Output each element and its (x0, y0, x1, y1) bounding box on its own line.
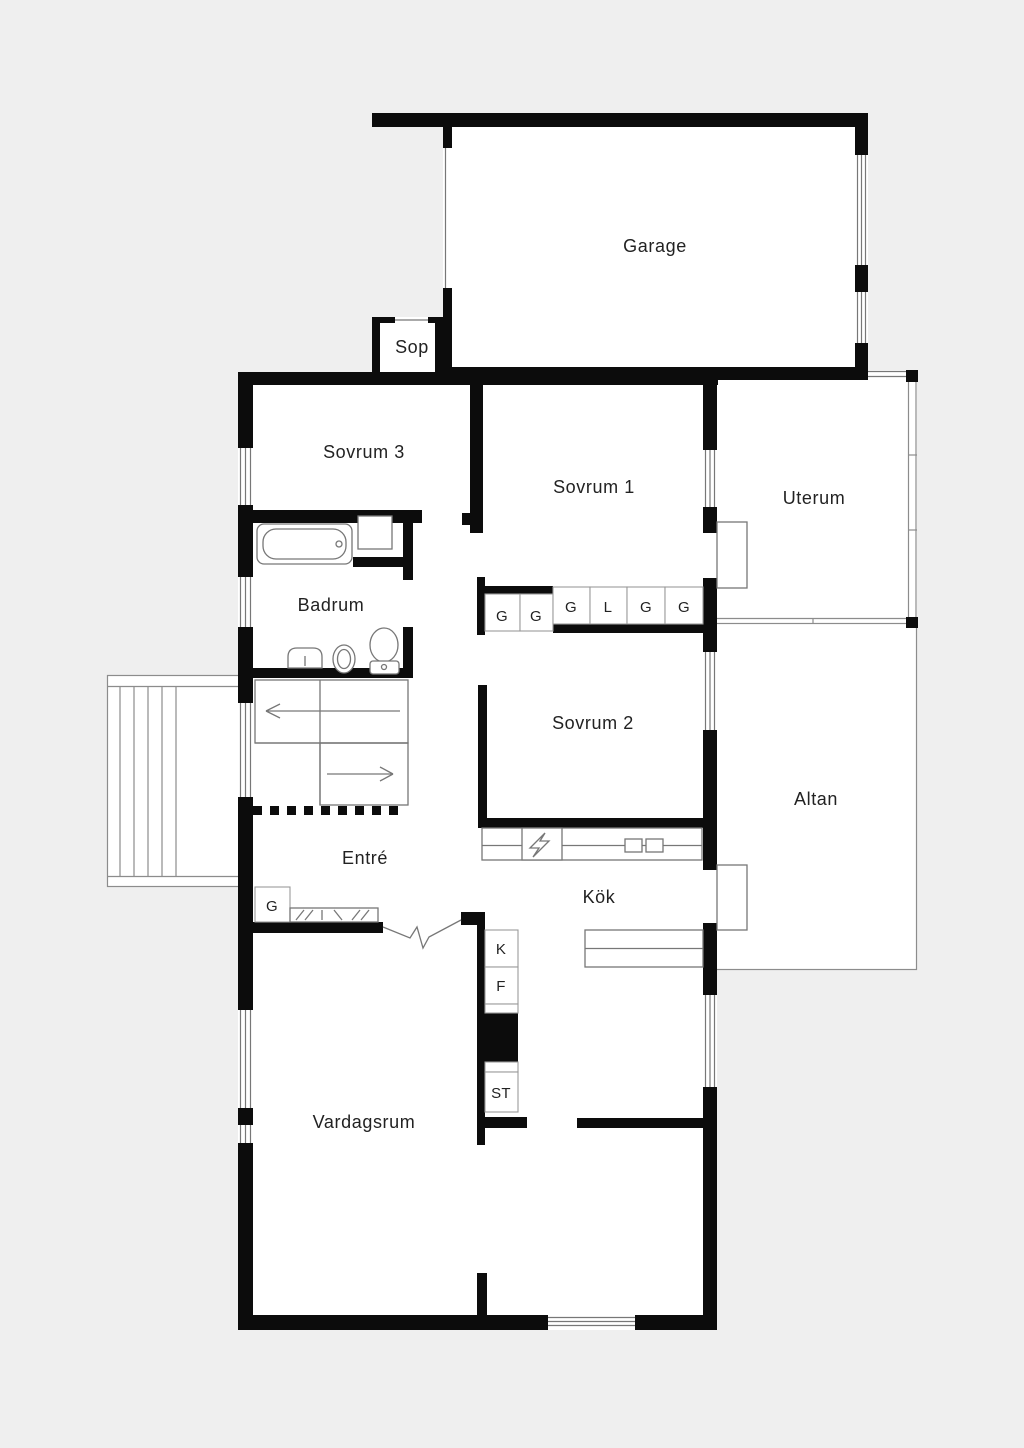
wardrobe-row: G G G L G G (485, 587, 703, 631)
room-label-altan: Altan (794, 789, 838, 809)
room-label-uterum: Uterum (783, 488, 846, 508)
wardrobe-label: L (604, 599, 613, 616)
room-label-badrum: Badrum (298, 595, 365, 615)
wardrobe-label: G (496, 608, 508, 625)
wardrobe-label: G (530, 608, 542, 625)
room-label-sop: Sop (395, 337, 429, 357)
chimney (480, 1013, 518, 1062)
room-label-garage: Garage (623, 236, 687, 256)
room-label-entre: Entré (342, 848, 388, 868)
shower-cabinet (358, 516, 392, 549)
freezer-label: F (496, 978, 505, 995)
cleaning-label: ST (491, 1085, 511, 1102)
stair-break-line (253, 806, 398, 815)
wardrobe-label: G (565, 599, 577, 616)
room-label-sovrum2: Sovrum 2 (552, 713, 634, 733)
bathroom-sink (288, 648, 322, 668)
room-label-kok: Kök (583, 887, 616, 907)
kitchen-sink (625, 839, 642, 852)
floor-plan-page: G G G L G G G K F ST (0, 0, 1024, 1448)
bathtub (257, 524, 352, 564)
floor-plan: G G G L G G G K F ST (0, 0, 1024, 1448)
uterum-door (717, 522, 747, 588)
hall-wardrobe: G (255, 887, 290, 922)
kitchen-sink (646, 839, 663, 852)
wardrobe-label: G (640, 599, 652, 616)
deck-stairs (107, 676, 247, 887)
bidet (333, 645, 355, 673)
room-label-sovrum1: Sovrum 1 (553, 477, 635, 497)
wardrobe-label: G (266, 898, 278, 915)
wardrobe-label: G (678, 599, 690, 616)
altan-door (717, 865, 747, 930)
fridge-label: K (496, 941, 506, 958)
room-label-sovrum3: Sovrum 3 (323, 442, 405, 462)
toilet (370, 628, 399, 674)
room-label-vardagsrum: Vardagsrum (313, 1112, 416, 1132)
